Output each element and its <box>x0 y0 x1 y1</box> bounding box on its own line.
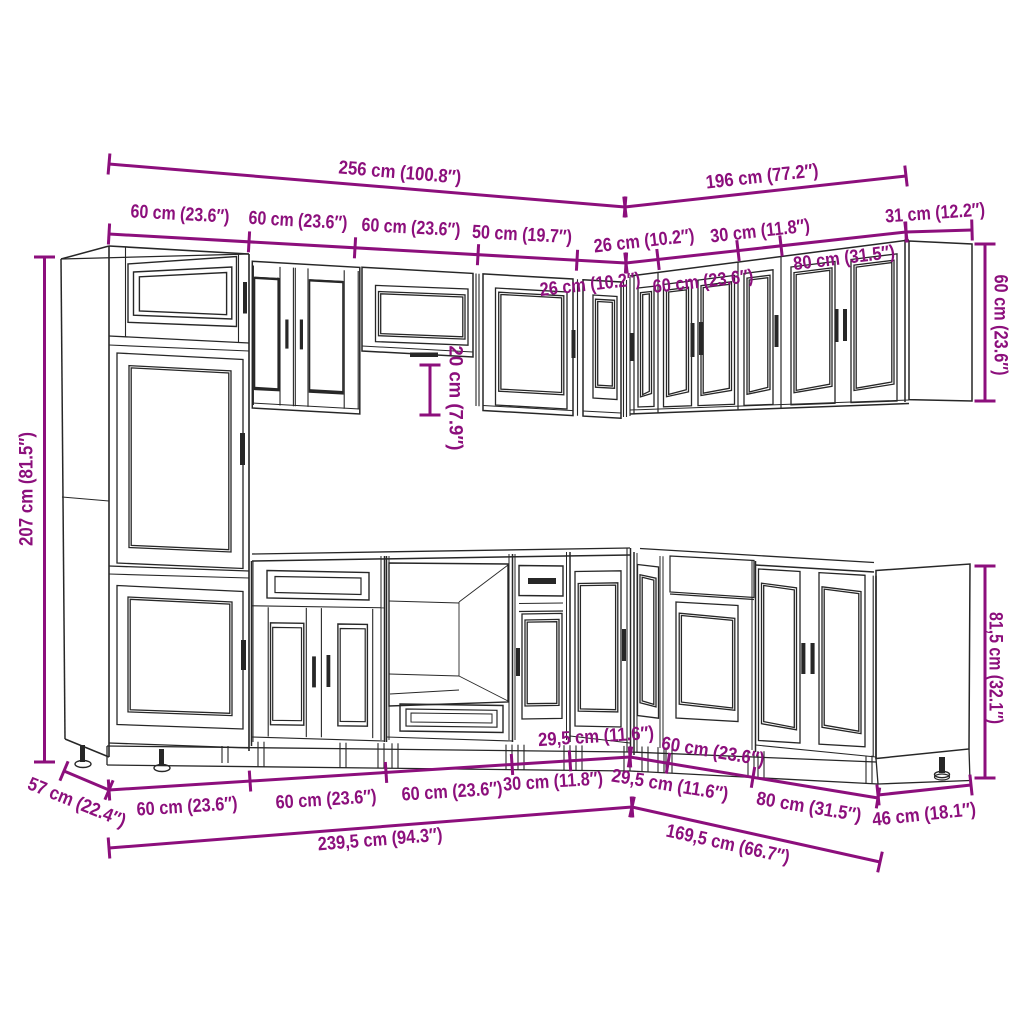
svg-text:20 cm (7.9″): 20 cm (7.9″) <box>445 346 466 451</box>
svg-text:207 cm (81.5″): 207 cm (81.5″) <box>17 432 38 546</box>
svg-text:60 cm (23.6″): 60 cm (23.6″) <box>990 275 1011 376</box>
svg-text:81,5 cm (32.1″): 81,5 cm (32.1″) <box>985 612 1006 724</box>
